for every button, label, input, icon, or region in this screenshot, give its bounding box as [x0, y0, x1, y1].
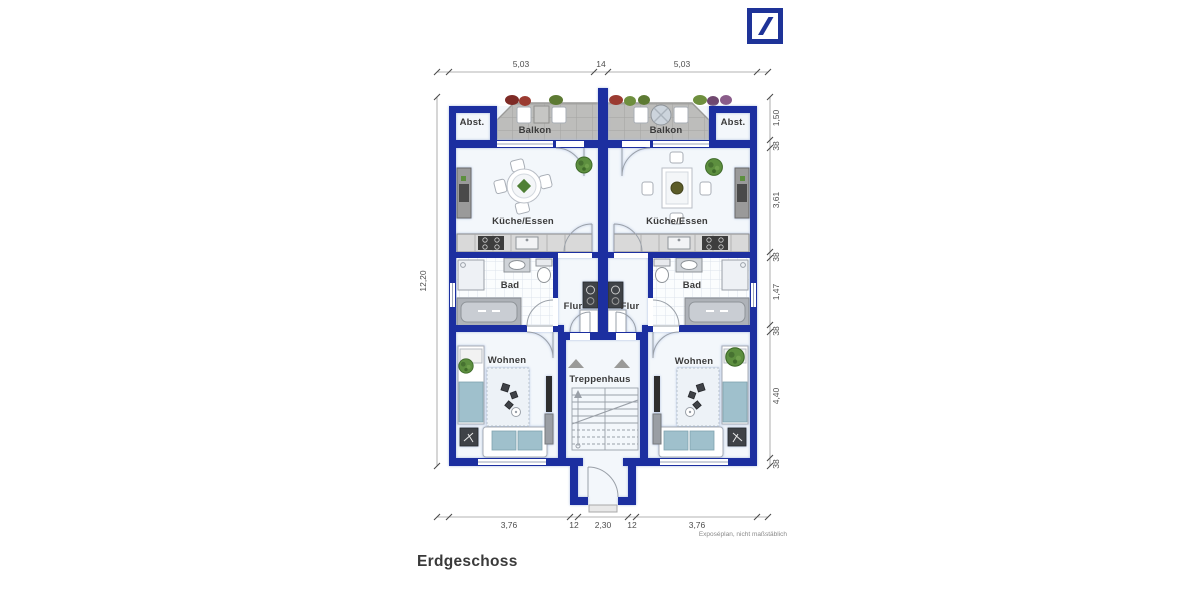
room-label-abst-left: Abst.	[460, 117, 485, 128]
party-wall	[598, 88, 608, 336]
dimension-top: 5,03 14 5,03	[434, 59, 771, 75]
dim-right-0: 1,50	[771, 109, 781, 126]
dim-top-1: 14	[596, 59, 606, 69]
plant-living-right	[726, 348, 744, 366]
plant-kitchen-right	[706, 159, 723, 176]
room-label-kueche-right: Küche/Essen	[646, 216, 708, 227]
room-label-balkon-right: Balkon	[650, 125, 683, 136]
balcony-left-furniture	[517, 106, 566, 123]
balcony-right-furniture	[634, 105, 688, 125]
dim-right-3: 38	[771, 252, 781, 262]
dim-top-2: 5,03	[674, 59, 691, 69]
dimension-bottom: 3,76 12 2,30 12 3,76	[434, 514, 771, 530]
dim-right-6: 4,40	[771, 387, 781, 404]
room-label-abst-right: Abst.	[721, 117, 746, 128]
deutsche-bank-logo	[747, 8, 783, 44]
dim-bottom-4: 3,76	[689, 520, 706, 530]
room-label-kueche-left: Küche/Essen	[492, 216, 554, 227]
dim-right-7: 38	[771, 459, 781, 469]
kitchen-counter	[457, 234, 592, 252]
plant-living-left	[459, 359, 473, 373]
room-label-flur-right: Flur	[621, 301, 640, 312]
dim-right-2: 3,61	[771, 191, 781, 208]
dim-right-4: 1,47	[771, 283, 781, 300]
dim-top-0: 5,03	[513, 59, 530, 69]
dim-bottom-2: 2,30	[595, 520, 612, 530]
dimension-left: 12,20	[418, 94, 440, 469]
dimension-right: 1,50 38 3,61 38 1,47 38 4,40 38	[767, 94, 781, 469]
floor-plan-canvas: Abst. Abst. Balkon Balkon Küche/Essen Kü…	[0, 0, 1200, 600]
plant-kitchen-left	[576, 157, 592, 173]
dim-bottom-0: 3,76	[501, 520, 518, 530]
dim-right-1: 38	[771, 141, 781, 151]
room-label-wohnen-left: Wohnen	[488, 355, 527, 366]
room-label-balkon-left: Balkon	[519, 125, 552, 136]
floor-title: Erdgeschoss	[417, 553, 518, 570]
dim-bottom-3: 12	[627, 520, 637, 530]
page: Abst. Abst. Balkon Balkon Küche/Essen Kü…	[0, 0, 1200, 600]
room-label-bad-right: Bad	[683, 280, 702, 291]
plan-footnote: Exposéplan, nicht maßstäblich	[699, 531, 788, 538]
room-label-treppenhaus: Treppenhaus	[569, 374, 630, 385]
dim-right-5: 38	[771, 326, 781, 336]
utility-appliances	[580, 282, 598, 334]
dim-bottom-1: 12	[569, 520, 579, 530]
room-label-wohnen-right: Wohnen	[675, 356, 714, 367]
room-label-bad-left: Bad	[501, 280, 520, 291]
dim-left-0: 12,20	[418, 270, 428, 292]
room-label-flur-left: Flur	[564, 301, 583, 312]
